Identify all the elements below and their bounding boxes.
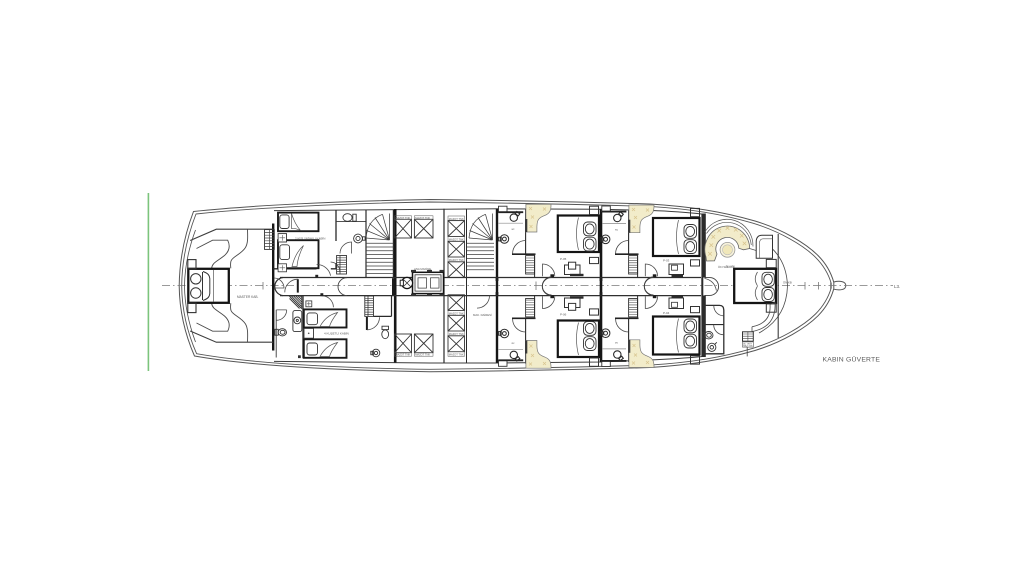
- svg-text:ÖN KB: ÖN KB: [783, 281, 792, 285]
- svg-text:MASTER KAB.: MASTER KAB.: [237, 295, 259, 299]
- svg-text:2 KİŞİ YATAKLI KABİN: 2 KİŞİ YATAKLI KABİN: [295, 236, 325, 241]
- svg-text:MAZOT TNK: MAZOT TNK: [449, 353, 464, 357]
- svg-text:MAZOT TNK: MAZOT TNK: [415, 353, 430, 357]
- svg-text:L3.: L3.: [894, 284, 900, 289]
- svg-text:P-03: P-03: [663, 259, 670, 263]
- svg-text:MAZOT TNK: MAZOT TNK: [415, 216, 430, 220]
- svg-text:MAZOT TNK: MAZOT TNK: [395, 353, 410, 357]
- svg-text:KABIN GÜVERTE: KABIN GÜVERTE: [823, 355, 881, 363]
- svg-text:MAK. DAİRESİ: MAK. DAİRESİ: [473, 312, 492, 317]
- svg-text:MAZ TNK: MAZ TNK: [743, 345, 753, 348]
- svg-text:MAZOT TNK: MAZOT TNK: [395, 216, 410, 220]
- svg-text:P-05: P-05: [560, 257, 567, 261]
- svg-text:4 KUŞETLİ KABİN: 4 KUŞETLİ KABİN: [324, 331, 349, 336]
- svg-text:P-06: P-06: [560, 313, 567, 317]
- svg-text:ÖN YTK: ÖN YTK: [726, 264, 736, 268]
- svg-text:P-04: P-04: [663, 311, 670, 315]
